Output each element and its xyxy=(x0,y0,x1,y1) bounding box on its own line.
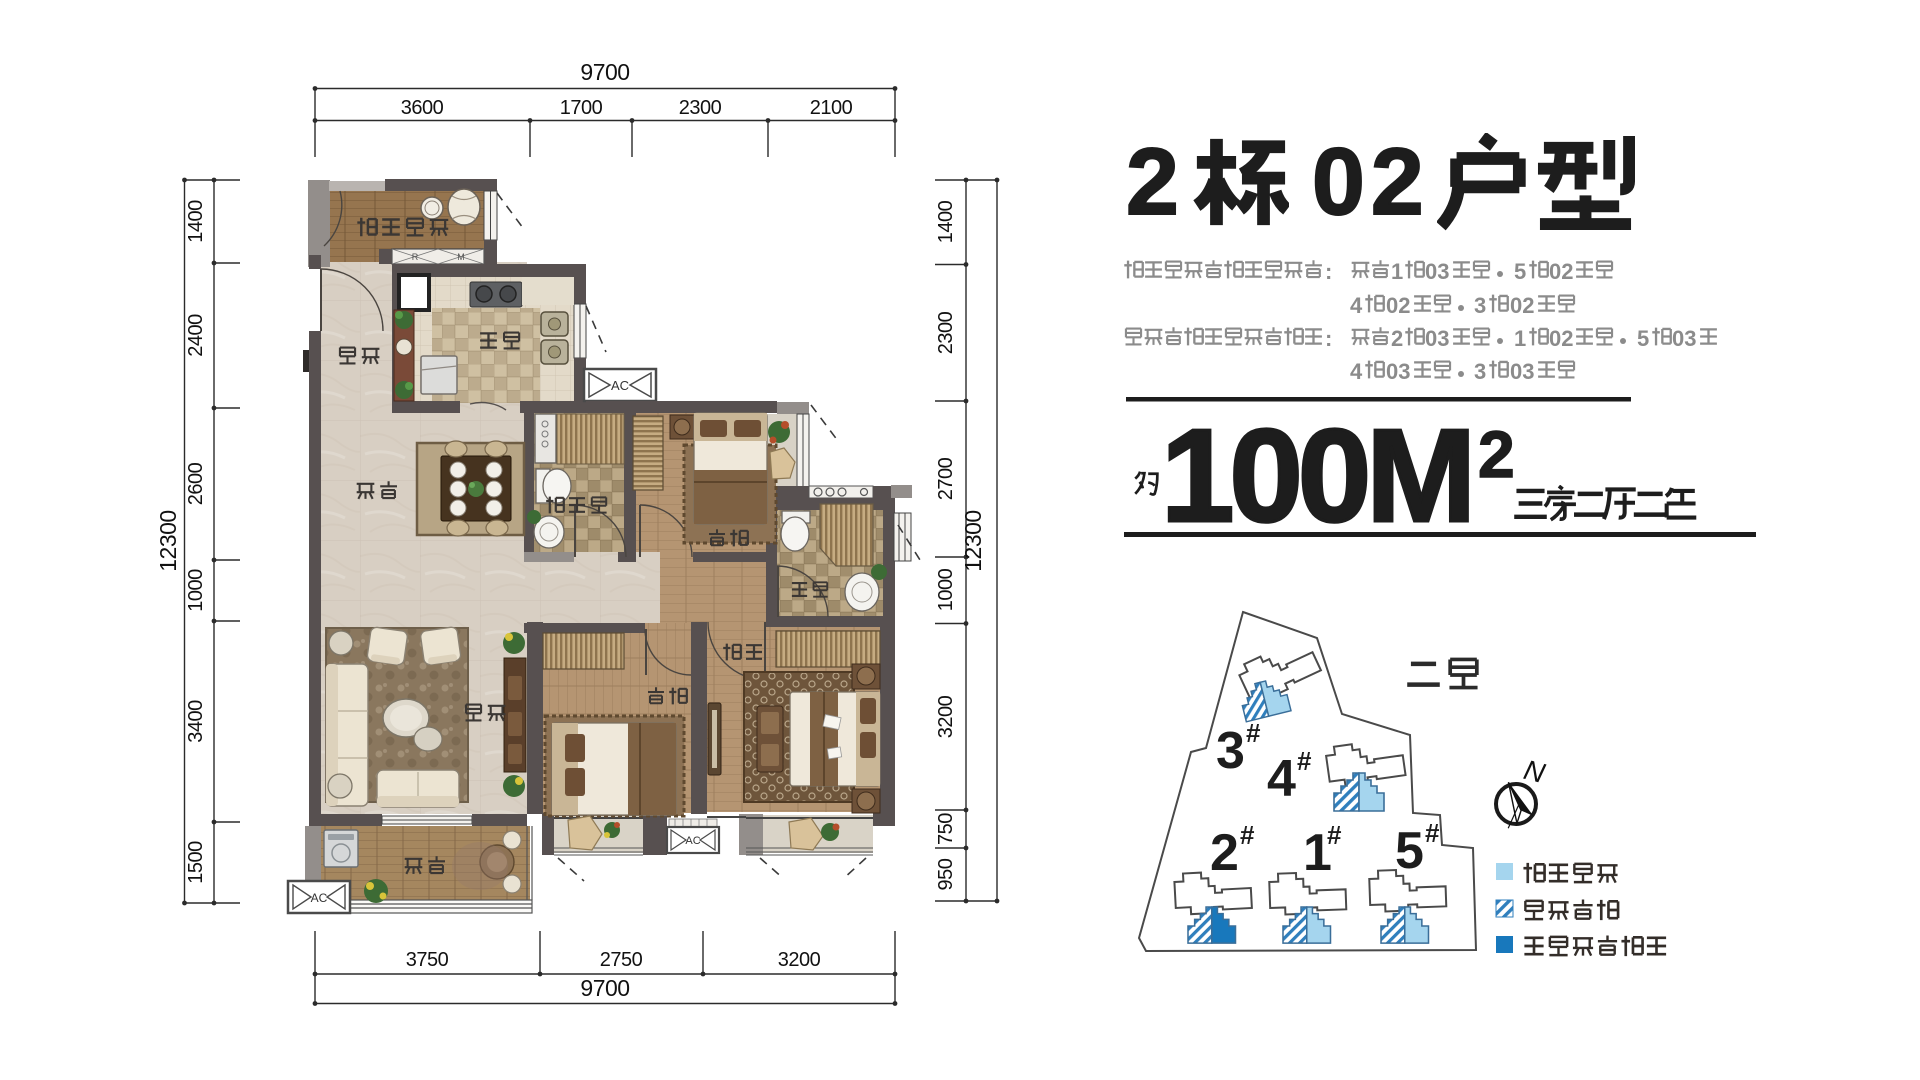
svg-text:03: 03 xyxy=(1672,326,1696,351)
svg-text:3: 3 xyxy=(1216,722,1245,780)
svg-text:1400: 1400 xyxy=(935,200,957,243)
svg-text:750: 750 xyxy=(935,813,957,845)
svg-text:R: R xyxy=(412,252,419,262)
svg-text:03: 03 xyxy=(1386,359,1410,384)
svg-text:4: 4 xyxy=(1350,293,1363,318)
svg-text:2: 2 xyxy=(1210,824,1239,882)
svg-text:3750: 3750 xyxy=(406,949,449,971)
svg-text:3200: 3200 xyxy=(935,695,957,738)
svg-text:2: 2 xyxy=(1478,417,1515,491)
svg-text:1000: 1000 xyxy=(935,568,957,611)
svg-text:4: 4 xyxy=(1350,359,1363,384)
svg-text:02: 02 xyxy=(1549,259,1573,284)
svg-text::: : xyxy=(1325,326,1332,351)
svg-text:03: 03 xyxy=(1510,359,1534,384)
svg-text:2: 2 xyxy=(1391,326,1403,351)
svg-text:1700: 1700 xyxy=(560,97,603,119)
svg-text:#: # xyxy=(1425,818,1440,848)
svg-text:5: 5 xyxy=(1637,326,1649,351)
svg-text:3: 3 xyxy=(1474,359,1486,384)
svg-text:M: M xyxy=(457,252,465,262)
svg-text:2300: 2300 xyxy=(679,97,722,119)
svg-text:2: 2 xyxy=(1126,129,1183,235)
svg-text:1000: 1000 xyxy=(185,569,207,612)
svg-text:2700: 2700 xyxy=(935,457,957,500)
svg-text:100M: 100M xyxy=(1161,402,1471,549)
svg-text:#: # xyxy=(1327,820,1342,850)
svg-text:12300: 12300 xyxy=(960,510,986,571)
svg-text:1400: 1400 xyxy=(185,200,207,243)
svg-text:1: 1 xyxy=(1391,259,1403,284)
svg-text:#: # xyxy=(1297,746,1312,776)
svg-text:02: 02 xyxy=(1510,293,1534,318)
svg-text:AC: AC xyxy=(611,378,629,393)
svg-text:2600: 2600 xyxy=(185,462,207,505)
svg-text:03: 03 xyxy=(1425,259,1449,284)
svg-text:02: 02 xyxy=(1312,129,1430,235)
svg-text:4: 4 xyxy=(1267,750,1296,808)
svg-text:9700: 9700 xyxy=(580,975,629,1001)
svg-text:#: # xyxy=(1240,820,1255,850)
svg-text:#: # xyxy=(1246,718,1261,748)
svg-text:2750: 2750 xyxy=(600,949,643,971)
svg-text:5: 5 xyxy=(1514,259,1526,284)
svg-text:AC: AC xyxy=(311,891,328,905)
svg-text:2300: 2300 xyxy=(935,311,957,354)
svg-text:1500: 1500 xyxy=(185,841,207,884)
svg-text:3400: 3400 xyxy=(185,700,207,743)
svg-text:5: 5 xyxy=(1395,822,1424,880)
svg-text:02: 02 xyxy=(1386,293,1410,318)
svg-text:1: 1 xyxy=(1514,326,1526,351)
svg-text:2100: 2100 xyxy=(810,97,853,119)
svg-text:3600: 3600 xyxy=(401,97,444,119)
svg-text:03: 03 xyxy=(1425,326,1449,351)
svg-text:12300: 12300 xyxy=(155,510,181,571)
svg-text:950: 950 xyxy=(935,858,957,890)
svg-text:02: 02 xyxy=(1549,326,1573,351)
svg-text:9700: 9700 xyxy=(580,59,629,85)
svg-text:2400: 2400 xyxy=(185,314,207,357)
svg-text:3200: 3200 xyxy=(778,949,821,971)
svg-text::: : xyxy=(1325,259,1332,284)
svg-text:AC: AC xyxy=(685,835,700,847)
svg-text:3: 3 xyxy=(1474,293,1486,318)
